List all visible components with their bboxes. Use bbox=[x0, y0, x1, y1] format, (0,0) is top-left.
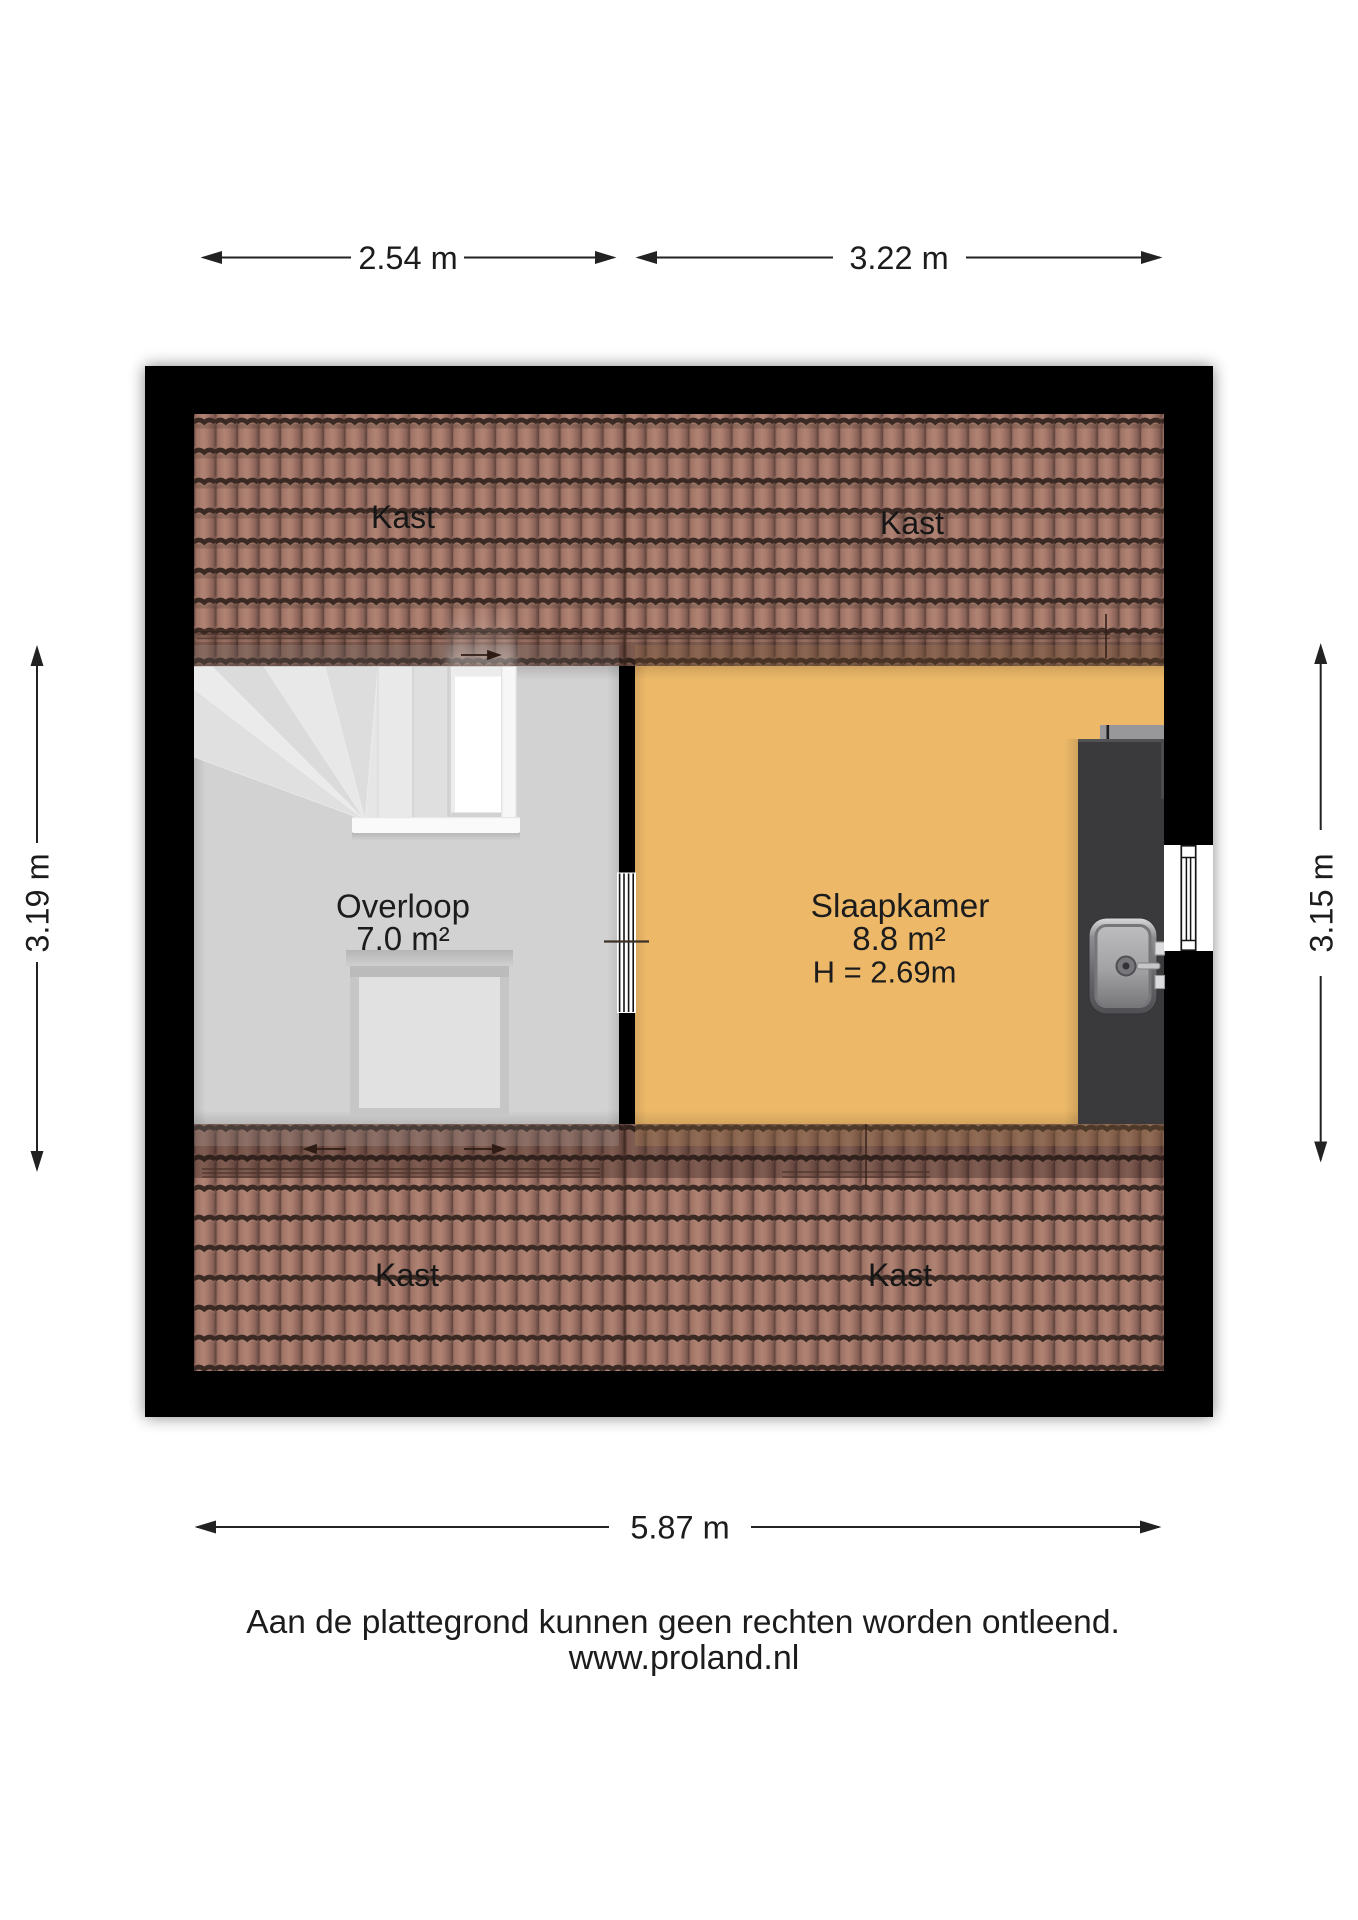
svg-text:Kast: Kast bbox=[371, 499, 435, 535]
svg-text:5.87 m: 5.87 m bbox=[630, 1510, 729, 1546]
svg-text:www.proland.nl: www.proland.nl bbox=[568, 1639, 800, 1677]
svg-text:2.54 m: 2.54 m bbox=[358, 240, 457, 276]
svg-text:7.0 m²: 7.0 m² bbox=[356, 920, 450, 957]
svg-text:Aan de plattegrond kunnen geen: Aan de plattegrond kunnen geen rechten w… bbox=[246, 1604, 1120, 1641]
svg-text:Overloop: Overloop bbox=[336, 888, 470, 925]
svg-text:3.22 m: 3.22 m bbox=[849, 240, 948, 276]
svg-text:Kast: Kast bbox=[880, 505, 944, 541]
svg-text:3.19 m: 3.19 m bbox=[20, 853, 56, 952]
svg-text:Kast: Kast bbox=[375, 1257, 439, 1293]
svg-text:3.15 m: 3.15 m bbox=[1304, 853, 1340, 952]
svg-text:Kast: Kast bbox=[868, 1257, 932, 1293]
svg-text:H = 2.69m: H = 2.69m bbox=[813, 955, 957, 990]
svg-text:8.8 m²: 8.8 m² bbox=[852, 920, 946, 957]
